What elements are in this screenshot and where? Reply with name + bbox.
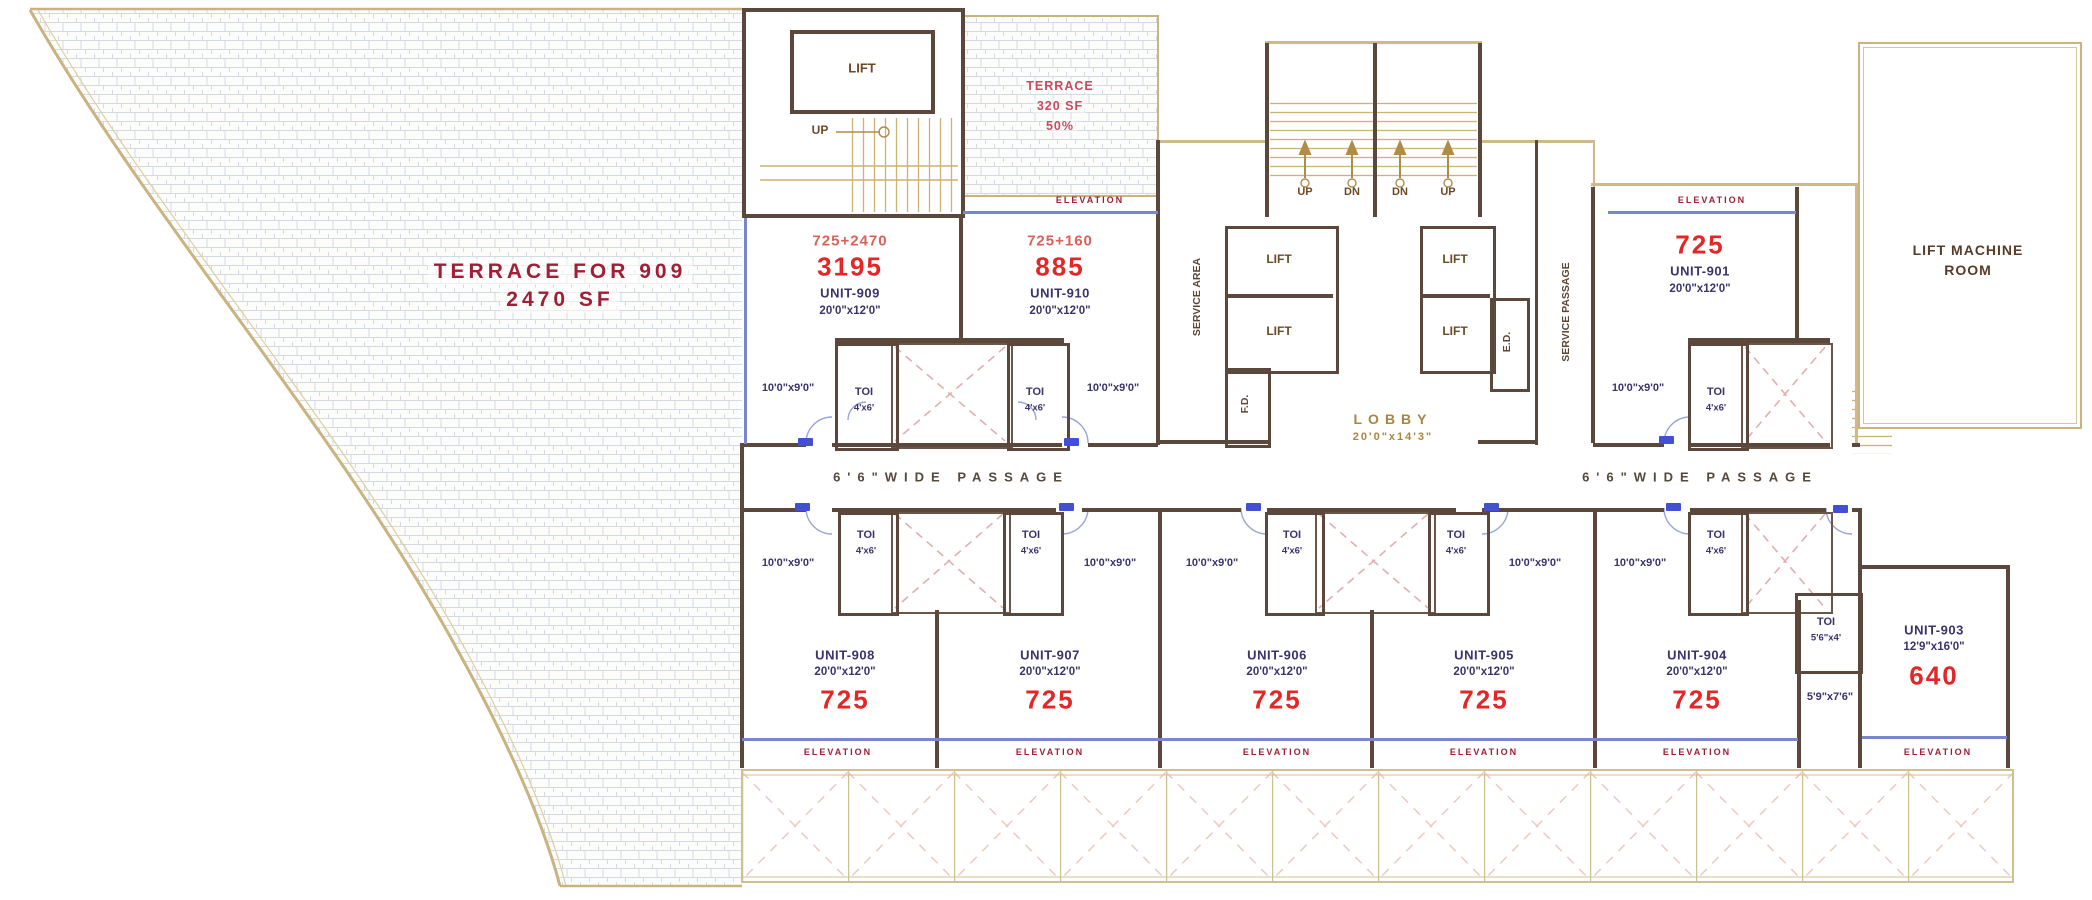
dn-label: DN [1392, 186, 1408, 198]
unit-909-sum: 725+2470 [812, 233, 887, 250]
unit-907-dim: 20'0"x12'0" [1019, 666, 1080, 678]
up-label: UP [1440, 186, 1455, 198]
wall-segment [1478, 43, 1482, 217]
toi-label: TOI [1022, 529, 1040, 541]
toi-dim-label: 4'x6' [1706, 546, 1726, 557]
wall-segment [1373, 43, 1377, 217]
wall-segment [1855, 183, 1858, 445]
up-label: UP [1297, 186, 1312, 198]
wall-segment [1420, 294, 1490, 298]
wall-segment [1370, 610, 1374, 768]
toi-label: TOI [1026, 386, 1044, 398]
unit-908-area: 725 [820, 685, 869, 716]
lift-label: LIFT [848, 61, 875, 76]
unit-905-name: UNIT-905 [1454, 648, 1514, 663]
balcony-dim-label: 10'0"x9'0" [1509, 557, 1561, 569]
wall-segment [1265, 43, 1269, 217]
wall-segment [1158, 140, 1267, 143]
lift-label: LIFT [1442, 324, 1467, 338]
lift-machine-room-outline [1858, 42, 2082, 429]
unit-910-area: 885 [1035, 252, 1084, 283]
elevation-label: ELEVATION [1678, 195, 1746, 205]
wall-segment [959, 218, 963, 342]
wall-segment [935, 610, 939, 768]
wall-segment [1591, 187, 1595, 443]
wall-segment [832, 443, 1062, 447]
unit-903-name: UNIT-903 [1904, 623, 1964, 638]
service-area-label: SERVICE AREA [1191, 258, 1203, 336]
lobby-dim-label: 20'0"x14'3" [1353, 431, 1434, 443]
duct-outline [1315, 512, 1436, 614]
elevation-label: ELEVATION [1056, 195, 1124, 205]
door-tag [1659, 436, 1674, 444]
wall-segment [1158, 440, 1270, 444]
elevation-label: ELEVATION [1663, 747, 1731, 757]
unit-909-area: 3195 [817, 252, 883, 283]
toi-label: TOI [1283, 529, 1301, 541]
elevation-label: ELEVATION [804, 747, 872, 757]
unit-908-dim: 20'0"x12'0" [814, 666, 875, 678]
door-tag [1064, 438, 1079, 446]
toi-dim-label: 4'x6' [856, 546, 876, 557]
toi-outline [1265, 512, 1325, 616]
wall-segment [1858, 510, 1862, 768]
toi-label: TOI [855, 386, 873, 398]
unit-901-dim: 20'0"x12'0" [1669, 283, 1730, 295]
toi-dim-label: 4'x6' [1706, 403, 1726, 414]
lobby-903-dim-label: 5'9"x7'6" [1807, 691, 1853, 703]
unit-901-area: 725 [1675, 230, 1724, 261]
terrace-left-shape [30, 9, 742, 886]
unit-904-dim: 20'0"x12'0" [1666, 666, 1727, 678]
unit-909-dim: 20'0"x12'0" [819, 305, 880, 317]
door-tag [1484, 503, 1499, 511]
wall-segment [1225, 294, 1333, 298]
elevation-label: ELEVATION [1243, 747, 1311, 757]
unit-906-name: UNIT-906 [1247, 648, 1307, 663]
wall-segment [1593, 443, 1664, 447]
unit-906-area: 725 [1252, 685, 1301, 716]
lift-label: LIFT [1442, 252, 1467, 266]
unit-907-name: UNIT-907 [1020, 648, 1080, 663]
duct-outline [891, 343, 1013, 449]
toi-dim-label: 4'x6' [1021, 546, 1041, 557]
wall-segment [742, 443, 806, 447]
unit-901-name: UNIT-901 [1670, 264, 1730, 279]
lift-machine-room-label: ROOM [1944, 262, 1992, 278]
door-tag [798, 438, 813, 446]
unit-905-area: 725 [1459, 685, 1508, 716]
canopy-band [742, 770, 2013, 882]
lift-bank-left-outline [1225, 226, 1339, 374]
wall-segment [1593, 508, 1597, 768]
balcony-dim-label: 10'0"x9'0" [1614, 557, 1666, 569]
passage-label: 6'6"WIDE PASSAGE [1582, 470, 1818, 485]
elevation-line [963, 211, 1158, 214]
unit-904-name: UNIT-904 [1667, 648, 1727, 663]
lift-label: LIFT [1266, 252, 1291, 266]
window-line [744, 218, 747, 444]
toi-label: TOI [1707, 529, 1725, 541]
toi-label: TOI [1447, 529, 1465, 541]
balcony-dim-label: 10'0"x9'0" [1186, 557, 1238, 569]
wall-segment [1858, 565, 2010, 569]
duct-outline [891, 512, 1011, 614]
ed-label: E.D. [1501, 332, 1513, 352]
door-tag [1666, 503, 1681, 511]
door-tag [1833, 505, 1848, 513]
elevation-line [742, 738, 1798, 741]
unit-903-dim: 12'9"x16'0" [1903, 641, 1964, 653]
lift-bank-right-outline [1420, 226, 1496, 374]
lift-machine-room-label: LIFT MACHINE [1913, 242, 2024, 258]
toi-outline [1688, 512, 1749, 616]
terrace-left-label: TERRACE FOR 909 [428, 259, 693, 285]
balcony-dim-label: 10'0"x9'0" [1087, 382, 1139, 394]
unit-910-dim: 20'0"x12'0" [1029, 305, 1090, 317]
dn-label: DN [1344, 186, 1360, 198]
door-tag [795, 503, 810, 511]
wall-segment [1852, 443, 1860, 447]
terrace-left-area: 2470 SF [500, 287, 619, 313]
toi-dim-label: 4'x6' [1282, 546, 1302, 557]
wall-segment [1158, 508, 1162, 768]
door-tag [1059, 503, 1074, 511]
wall-segment [1482, 508, 1664, 512]
toi-outline [1428, 512, 1490, 616]
elevation-line [1608, 211, 1796, 214]
passage-label: 6'6"WIDE PASSAGE [833, 470, 1069, 485]
up-label: UP [812, 123, 829, 137]
unit-908-name: UNIT-908 [815, 648, 875, 663]
toi-dim-label: 4'x6' [1446, 546, 1466, 557]
terrace-top-label: TERRACE [1023, 79, 1096, 93]
unit-909-name: UNIT-909 [820, 286, 880, 301]
elevation-label: ELEVATION [1016, 747, 1084, 757]
floor-plan: TERRACE FOR 909 2470 SF TERRACE 320 SF 5… [0, 0, 2092, 900]
balcony-dim-label: 10'0"x9'0" [1084, 557, 1136, 569]
service-passage-label: SERVICE PASSAGE [1560, 262, 1572, 361]
toi-label: TOI [1707, 386, 1725, 398]
unit-903-area: 640 [1909, 661, 1958, 692]
wall-segment [1482, 140, 1595, 143]
wall-segment [1591, 183, 1858, 186]
wall-segment [1535, 140, 1538, 445]
wall-segment [1088, 443, 1158, 447]
wall-segment [1156, 140, 1160, 445]
duct-outline [1741, 343, 1833, 449]
balcony-dim-label: 10'0"x9'0" [1612, 382, 1664, 394]
unit-910-sum: 725+160 [1027, 233, 1093, 250]
balcony-dim-label: 10'0"x9'0" [762, 557, 814, 569]
toi-label: TOI [857, 529, 875, 541]
lobby-label: LOBBY [1354, 411, 1433, 427]
terrace-top-pct: 50% [1043, 119, 1077, 133]
toi-dim-label: 4'x6' [854, 403, 874, 414]
wall-segment [1478, 440, 1537, 444]
toi-dim-label: 4'x6' [1025, 403, 1045, 414]
wall-segment [1593, 140, 1595, 187]
door-tag [1246, 503, 1261, 511]
elevation-label: ELEVATION [1450, 747, 1518, 757]
toi-label: TOI [1817, 616, 1835, 628]
unit-906-dim: 20'0"x12'0" [1246, 666, 1307, 678]
terrace-top-area: 320 SF [1034, 99, 1086, 113]
toi-outline [1003, 512, 1064, 616]
lift-label: LIFT [1266, 324, 1291, 338]
toi-outline [838, 512, 899, 616]
unit-905-dim: 20'0"x12'0" [1453, 666, 1514, 678]
toi-dim-label: 5'6"x4' [1811, 633, 1841, 644]
wall-segment [740, 443, 744, 768]
unit-907-area: 725 [1025, 685, 1074, 716]
unit-910-name: UNIT-910 [1030, 286, 1090, 301]
elevation-line [1862, 736, 2007, 739]
elevation-label: ELEVATION [1904, 747, 1972, 757]
fd-label: F.D. [1239, 395, 1251, 414]
unit-904-area: 725 [1672, 685, 1721, 716]
balcony-dim-label: 10'0"x9'0" [762, 382, 814, 394]
